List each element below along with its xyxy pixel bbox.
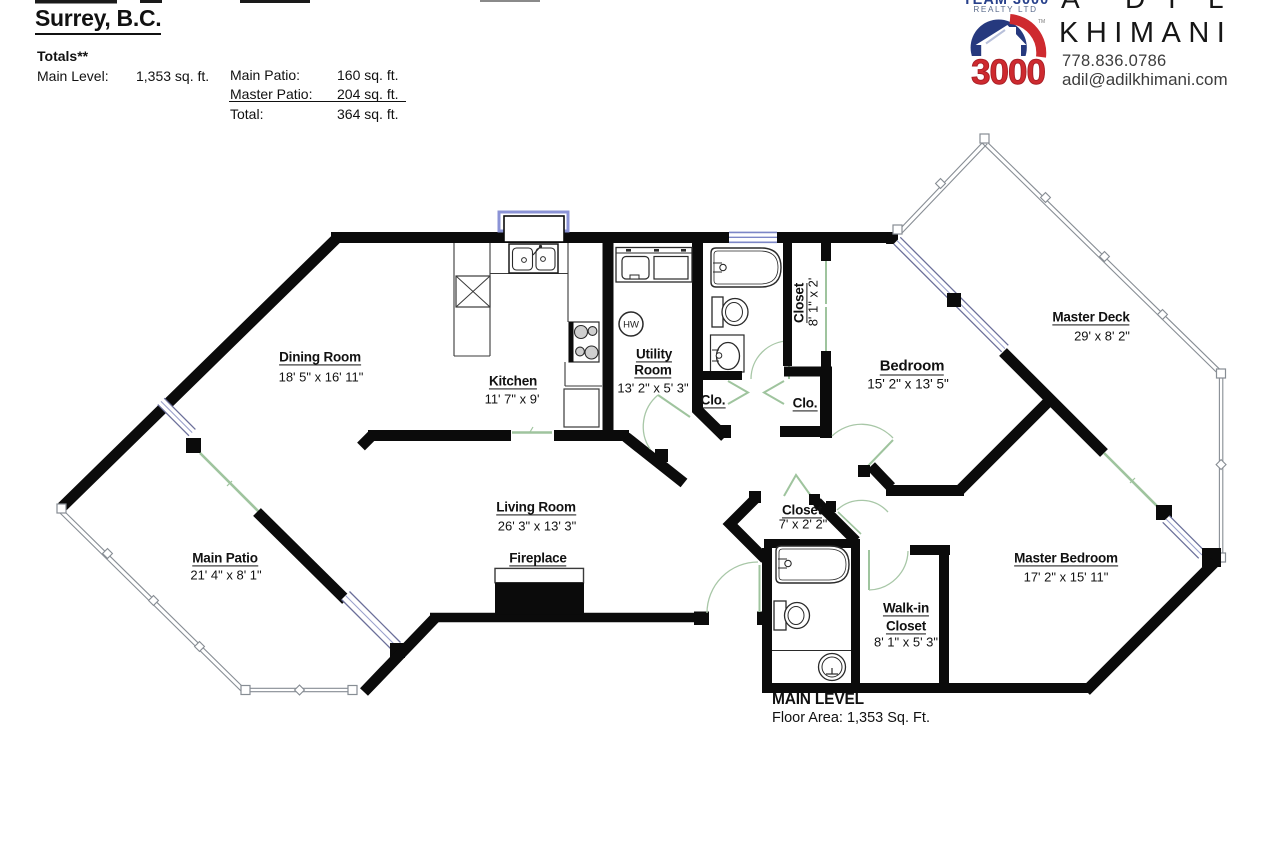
- svg-text:TM: TM: [1038, 19, 1045, 25]
- svg-text:A: A: [1061, 0, 1080, 14]
- svg-text:3000: 3000: [971, 53, 1045, 92]
- svg-text:HW: HW: [623, 320, 639, 331]
- svg-text:D: D: [1125, 0, 1145, 14]
- svg-text:REALTY LTD: REALTY LTD: [973, 5, 1037, 14]
- svg-text:778.836.0786: 778.836.0786: [1062, 52, 1167, 70]
- svg-text:adil@adilkhimani.com: adil@adilkhimani.com: [1062, 70, 1228, 89]
- svg-text:I: I: [1168, 0, 1176, 14]
- svg-text:KHIMANI: KHIMANI: [1059, 17, 1232, 49]
- svg-text:L: L: [1208, 0, 1224, 14]
